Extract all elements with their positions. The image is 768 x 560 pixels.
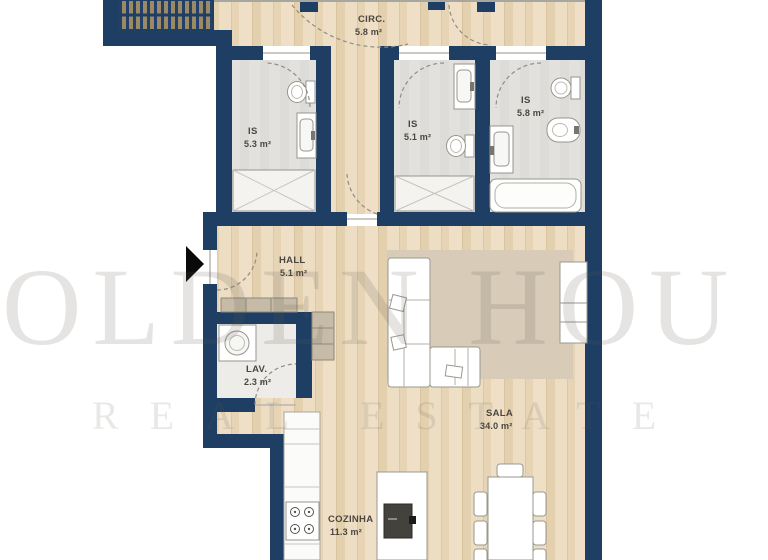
toilet [447, 135, 475, 157]
pillow [390, 295, 407, 312]
cabinet [312, 312, 334, 360]
wall [103, 30, 232, 46]
washbasin-vanity [490, 126, 513, 173]
wall [475, 46, 490, 226]
floor-corridor [331, 46, 380, 214]
wall [203, 434, 284, 448]
washbasin-vanity [297, 113, 316, 158]
wall [316, 46, 331, 226]
bathtub [490, 179, 581, 212]
wall [203, 226, 217, 250]
wall [217, 312, 312, 324]
room-area-lav: 2.3 m² [244, 377, 271, 387]
floor-plan-canvas: CIRC. 5.8 m² IS 5.3 m² IS 5.1 m² IS 5.8 … [0, 0, 768, 560]
washbasin-vanity [454, 64, 475, 109]
floor-circ [213, 0, 585, 46]
room-label-cozinha: COZINHA [328, 514, 373, 525]
wall [377, 212, 585, 226]
dining-table [488, 477, 533, 560]
wall [449, 46, 475, 60]
room-area-circ: 5.8 m² [355, 27, 382, 37]
room-label-circ: CIRC. [358, 14, 385, 25]
entrance-arrow-icon [186, 246, 204, 282]
wall [310, 46, 316, 60]
room-label-sala: SALA [486, 408, 513, 419]
wall [585, 0, 602, 560]
wall [216, 46, 232, 226]
section-cut-line [213, 0, 585, 2]
wall [296, 324, 312, 398]
room-area-sala: 34.0 m² [480, 421, 512, 431]
staircase [118, 0, 213, 30]
toilet [288, 81, 316, 103]
room-area-is-a: 5.3 m² [244, 139, 271, 149]
room-label-is-c: IS [521, 95, 531, 106]
wall [394, 46, 399, 60]
washing-machine [219, 325, 256, 361]
wall [546, 46, 585, 60]
room-label-is-a: IS [248, 126, 258, 137]
floor-plan-page: CIRC. 5.8 m² IS 5.3 m² IS 5.1 m² IS 5.8 … [0, 0, 768, 560]
bidet [547, 118, 580, 142]
shower [395, 176, 474, 211]
stove-hob [286, 502, 319, 540]
room-label-lav: LAV. [246, 364, 267, 375]
wall [203, 212, 347, 226]
shower [233, 170, 315, 211]
room-area-cozinha: 11.3 m² [330, 527, 362, 537]
island-sink [384, 504, 416, 538]
wall [203, 284, 217, 440]
pillow [391, 335, 406, 350]
room-area-is-c: 5.8 m² [517, 108, 544, 118]
room-area-hall: 5.1 m² [280, 268, 307, 278]
wall [270, 448, 284, 560]
wardrobe [221, 298, 297, 312]
pillow [445, 365, 462, 378]
wall [380, 46, 394, 226]
wall [217, 398, 255, 412]
wall [490, 46, 496, 60]
room-label-hall: HALL [279, 255, 306, 266]
sideboard [560, 262, 587, 343]
wall [232, 46, 263, 60]
room-area-is-b: 5.1 m² [404, 132, 431, 142]
room-label-is-b: IS [408, 119, 418, 130]
kitchen-island [377, 472, 427, 560]
toilet [551, 77, 580, 99]
